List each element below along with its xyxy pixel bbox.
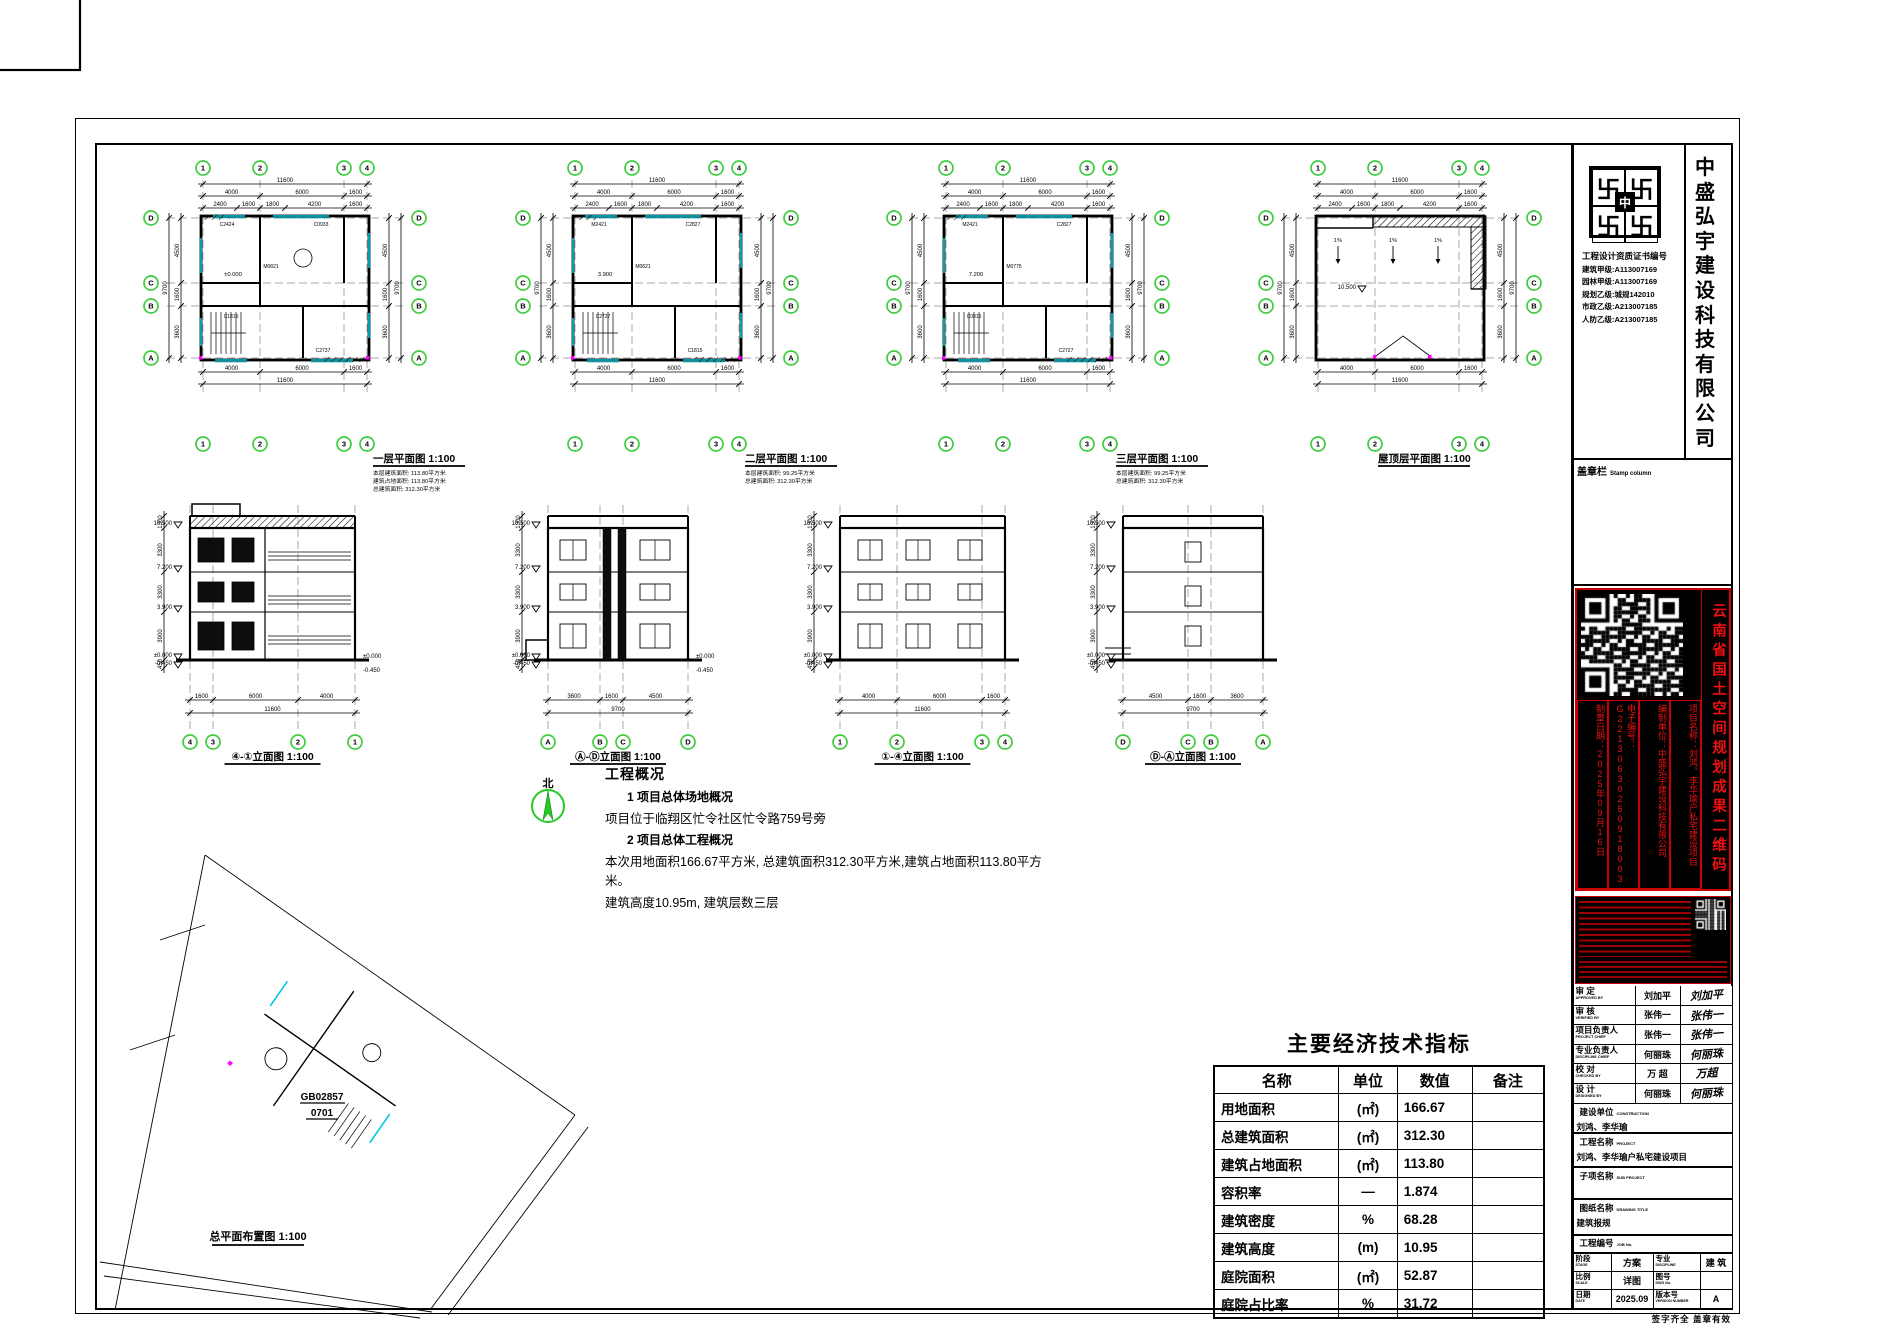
level-text: ±0.000 (512, 653, 531, 659)
level-text: 10.500 (1338, 285, 1357, 291)
dim-text: 1300 (158, 515, 164, 529)
level-text: ±0.000 (1087, 653, 1106, 659)
drawing-title-box: 图纸名称DRAWING TITLE 建筑报规 (1574, 1200, 1732, 1236)
stamp-side-text: 云南省国土空间规划成果二维码 (1701, 590, 1729, 889)
scale-value: 详图 (1614, 1273, 1651, 1288)
dim-text: 3900 (808, 629, 814, 643)
cad-rect (738, 356, 742, 360)
axis-label: D (520, 214, 526, 223)
level-mark (174, 522, 182, 528)
dim-text: 1600 (175, 287, 181, 301)
signature-handwriting: 刘加平 (1680, 984, 1732, 1006)
discipline-label: 专业 (1656, 1255, 1698, 1263)
tb-line-1 (1571, 458, 1733, 460)
dim-text: 1600 (349, 202, 363, 208)
indicator-cell: (㎡) (1338, 1094, 1396, 1121)
axis-label: 2 (1001, 440, 1005, 449)
axis-label: C (520, 279, 526, 288)
cad-rect (840, 528, 1005, 660)
cad-rect (199, 356, 203, 360)
indicator-cell (1472, 1094, 1543, 1121)
axis-label: B (416, 302, 422, 311)
dim-text: 6000 (1038, 366, 1052, 372)
indicator-row: 用地面积(㎡)166.67 (1215, 1093, 1543, 1121)
plan-level: 3.900 (598, 272, 613, 278)
cad-rect (943, 215, 967, 220)
dim-text: 3600 (175, 325, 181, 339)
indicator-cell: (㎡) (1338, 1262, 1396, 1289)
date-label: 日期 (1576, 1291, 1609, 1299)
slope-arrow (1336, 259, 1341, 264)
dim-text: 4200 (1051, 202, 1065, 208)
dim-text: 11600 (1392, 378, 1409, 384)
elevation-title: ①-④立面图 1:100 (881, 750, 964, 763)
plan-note: 本层建筑面积: 99.25平方米 (1116, 469, 1186, 477)
signature-role: 项目负责人 (1576, 1026, 1633, 1035)
cad-line (160, 925, 205, 940)
cad-rect (571, 356, 575, 360)
plot-code: GB02857 (301, 1092, 344, 1103)
axis-label: C (1531, 279, 1537, 288)
cad-rect (366, 356, 370, 360)
dim-text: 1600 (242, 202, 256, 208)
indicators-block: 主要经济技术指标 名称单位数值备注用地面积(㎡)166.67总建筑面积(㎡)31… (1213, 1028, 1545, 1319)
level-text: 3.900 (1090, 605, 1106, 611)
certificate-line: 规划乙级:城规142010 (1582, 289, 1682, 300)
dim-text: 6000 (295, 366, 309, 372)
dim-text: 9700 (906, 281, 912, 295)
cad-rect (190, 516, 355, 528)
axis-label: D (148, 214, 154, 223)
dim-text: 4000 (320, 694, 334, 700)
cad-rect (1123, 528, 1263, 660)
indicator-cell: % (1338, 1206, 1396, 1233)
signature-row: 校 对CHECKED BY万 超万超 (1574, 1064, 1732, 1084)
cad-line (100, 1262, 432, 1312)
cad-rect (1373, 216, 1486, 227)
cad-rect (232, 582, 254, 602)
dim-text: 4200 (1423, 202, 1437, 208)
dim-text: 1600 (987, 694, 1001, 700)
level-text: 7.200 (157, 565, 173, 571)
signature-name: 万 超 (1636, 1064, 1681, 1083)
dim-text: 9700 (163, 281, 169, 295)
axis-label: 2 (1001, 164, 1005, 173)
dim-text: 11600 (649, 378, 666, 384)
indicator-cell: 建筑占地面积 (1215, 1150, 1338, 1177)
signature-role-en: APPROVED BY (1576, 996, 1633, 1000)
dim-text: 3600 (918, 325, 924, 339)
dim-text: 1600 (755, 287, 761, 301)
certificate-line: 建筑甲级:A113007169 (1582, 264, 1682, 275)
indicator-cell (1472, 1122, 1543, 1149)
signature-name: 何丽珠 (1636, 1045, 1681, 1064)
dim-text: 3300 (808, 585, 814, 599)
indicator-cell: 31.72 (1397, 1290, 1472, 1317)
cad-rect (198, 622, 224, 650)
axis-label: C (620, 738, 626, 747)
dim-text: 4000 (968, 190, 982, 196)
dim-text: 3600 (383, 325, 389, 339)
dim-text: 4500 (1498, 243, 1504, 257)
indicators-title: 主要经济技术指标 (1213, 1028, 1545, 1058)
axis-label: A (891, 354, 897, 363)
indicator-cell: % (1338, 1290, 1396, 1317)
dim-text: 4200 (680, 202, 694, 208)
cad-rect (232, 538, 254, 562)
cad-line (104, 1276, 420, 1318)
project-name-box: 工程名称PROJECT 刘鸿、李华瑜户私宅建设项目 (1574, 1134, 1732, 1168)
dim-text: 4500 (649, 694, 663, 700)
indicator-cell (1472, 1150, 1543, 1177)
axis-label: 1 (944, 440, 948, 449)
axis-label: 3 (714, 440, 718, 449)
scale-row: 比例SCALE 详图 图号DWG No. (1574, 1272, 1732, 1290)
axis-label: 1 (944, 164, 948, 173)
level-mark (532, 522, 540, 528)
dim-text: 3300 (158, 585, 164, 599)
dim-text: 1600 (721, 202, 735, 208)
cad-rect (198, 538, 224, 562)
dim-text: 1600 (1092, 202, 1106, 208)
dim-text: 1600 (1464, 190, 1478, 196)
indicator-row: 建筑密度%68.28 (1215, 1205, 1543, 1233)
dim-text: 2400 (585, 202, 599, 208)
axis-label: A (416, 354, 422, 363)
dim-text: 1600 (1092, 366, 1106, 372)
dim-text: 4500 (547, 243, 553, 257)
opening-code: M0775 (1006, 264, 1022, 270)
slope-arrow (1391, 259, 1396, 264)
overview-heading-1: 1 项目总体场地概况 (605, 788, 1065, 805)
level-mark (1107, 606, 1115, 612)
dim-text: 6000 (1038, 190, 1052, 196)
dim-text: 1600 (721, 190, 735, 196)
dim-text: 1600 (614, 202, 628, 208)
axis-label: A (1159, 354, 1165, 363)
indicator-cell (1472, 1234, 1543, 1261)
level-mark (1107, 522, 1115, 528)
stamp-column-label: 盖章栏 (1577, 467, 1607, 478)
cad-rect (572, 215, 596, 220)
level-mark (1107, 566, 1115, 572)
plan-level: ±0.000 (224, 272, 242, 278)
opening-code: C2827 (686, 222, 701, 228)
cad-rect (1066, 357, 1112, 362)
plot-code: 0701 (311, 1108, 334, 1119)
job-label: 工程编号 (1580, 1238, 1614, 1248)
dim-text: 6000 (933, 694, 947, 700)
indicator-row: 庭院占比率%31.72 (1215, 1289, 1543, 1317)
axis-label: D (891, 214, 897, 223)
dim-text: 1300 (1091, 515, 1097, 529)
drawing-title-label-en: DRAWING TITLE (1617, 1207, 1649, 1212)
indicator-cell: 166.67 (1397, 1094, 1472, 1121)
cad-rect (200, 215, 224, 220)
company-name-vertical: 中盛弘宇建设科技有限公司 (1692, 156, 1718, 451)
cad-rect (1428, 355, 1432, 359)
dim-text: 1600 (985, 202, 999, 208)
slope-text: 1% (1389, 238, 1397, 244)
dim-text: 11600 (649, 178, 666, 184)
indicator-cell: 容积率 (1215, 1178, 1338, 1205)
validity-note: 签字齐全 盖章有效 (1585, 1313, 1731, 1325)
stamp-fine-print (1579, 901, 1691, 957)
stamp-column-box: 盖章栏Stamp column (1577, 462, 1651, 480)
indicator-row: 建筑占地面积(㎡)113.80 (1215, 1149, 1543, 1177)
axis-label: 2 (258, 164, 262, 173)
level-text: 3.900 (807, 605, 823, 611)
plan-note: 总建筑面积: 312.30平方米 (745, 477, 813, 485)
cad-rect (1185, 542, 1201, 562)
indicator-header-row: 名称单位数值备注 (1215, 1067, 1543, 1093)
dim-text: 3600 (567, 694, 581, 700)
signature-row: 项目负责人PROJECT CHIEF张伟一张伟一 (1574, 1025, 1732, 1045)
axis-label: 1 (1316, 164, 1320, 173)
stamp-electronic-no: 电子编号：G22130630250918003 (1608, 700, 1639, 889)
dim-text: 4000 (862, 694, 876, 700)
indicator-cell (1472, 1178, 1543, 1205)
version-label-en: VERSION NUMBER (1656, 1299, 1698, 1303)
plan-note: 总建筑面积: 312.30平方米 (373, 485, 441, 493)
axis-label: 1 (201, 440, 205, 449)
signature-role-en: DISCIPLINE CHIEF (1576, 1055, 1633, 1059)
axis-label: C (1159, 279, 1165, 288)
cad-line (448, 1127, 588, 1315)
indicator-cell: 113.80 (1397, 1150, 1472, 1177)
dim-text: 4000 (1340, 366, 1354, 372)
dim-text: 6000 (1410, 366, 1424, 372)
stamp-producer: 编制单位：中盛弘宇建设科技有限公司 (1639, 700, 1670, 889)
dim-text: 6000 (249, 694, 263, 700)
dim-text: 9700 (1186, 707, 1200, 713)
overview-title: 工程概况 (605, 764, 1065, 784)
axis-label: B (891, 302, 897, 311)
qr-code-small (1695, 899, 1726, 930)
level-mark (824, 662, 832, 668)
dim-text: 9700 (395, 281, 401, 295)
level-mark (532, 606, 540, 612)
plan-title: 一层平面图 1:100 (373, 453, 455, 465)
overview-line-height: 建筑高度10.95m, 建筑层数三层 (605, 892, 1065, 911)
cad-rect (198, 582, 224, 602)
axis-label: D (1263, 214, 1269, 223)
signature-row: 审 核VERIFIED BY张伟一张伟一 (1574, 1006, 1732, 1026)
dim-text: 3300 (158, 543, 164, 557)
dim-text: 3600 (1126, 325, 1132, 339)
date-label-en: DATE (1576, 1299, 1609, 1303)
drawing-title-label: 图纸名称 (1580, 1203, 1614, 1213)
cad-rect (1471, 227, 1486, 289)
dim-text: 1600 (721, 366, 735, 372)
dim-text: 1600 (349, 366, 363, 372)
dim-text: 450 (808, 658, 814, 669)
opening-code: C2727 (596, 314, 611, 320)
project-label-en: PROJECT (1617, 1141, 1636, 1146)
opening-code: C2727 (1059, 348, 1074, 354)
dim-text: 9700 (767, 281, 773, 295)
dim-text: 1800 (638, 202, 652, 208)
level-text: 7.200 (515, 565, 531, 571)
stamp-fine-print-footer (1579, 961, 1727, 980)
drawing-sheet: 11223344DDCCBBAA240016001800420016004000… (0, 0, 1879, 1328)
axis-label: 3 (1085, 440, 1089, 449)
cad-rect (1185, 586, 1201, 606)
signature-role-en: DESIGNED BY (1576, 1094, 1633, 1098)
level-text: 7.200 (1090, 565, 1106, 571)
dim-text: 4500 (175, 243, 181, 257)
signature-role-en: CHECKED BY (1576, 1074, 1633, 1078)
dim-text: 3600 (1498, 325, 1504, 339)
stage-label: 阶段 (1576, 1255, 1609, 1263)
opening-code: C2827 (1057, 222, 1072, 228)
indicator-cell: 312.30 (1397, 1122, 1472, 1149)
level-mark (532, 662, 540, 668)
slope-arrow (1436, 259, 1441, 264)
axis-label: A (788, 354, 794, 363)
slope-text: 1% (1334, 238, 1342, 244)
axis-label: A (1260, 738, 1266, 747)
opening-code: C0933 (314, 222, 329, 228)
dim-text: 4500 (383, 243, 389, 257)
construction-unit-box: 建设单位CONSTRUCTION 刘鸿、李华瑜 (1574, 1104, 1732, 1134)
axis-label: C (1263, 279, 1269, 288)
dim-text: 3300 (1091, 585, 1097, 599)
indicator-row: 庭院面积(㎡)52.87 (1215, 1261, 1543, 1289)
axis-label: 3 (1457, 164, 1461, 173)
indicator-cell: 庭院占比率 (1215, 1290, 1338, 1317)
dim-text: 4000 (1340, 190, 1354, 196)
cad-rect (603, 528, 611, 660)
axis-label: 1 (1316, 440, 1320, 449)
axis-label: B (1263, 302, 1269, 311)
indicator-cell: 建筑高度 (1215, 1234, 1338, 1261)
scale-label: 比例 (1576, 1273, 1609, 1281)
indicator-cell: 建筑密度 (1215, 1206, 1338, 1233)
level-mark (532, 566, 540, 572)
dim-text: 1300 (516, 515, 522, 529)
opening-code: M0821 (263, 264, 279, 270)
signature-role: 专业负责人 (1576, 1046, 1633, 1055)
cad-rect (942, 356, 946, 360)
indicator-cell (1472, 1290, 1543, 1317)
level-text: 3.900 (515, 605, 531, 611)
plan-note: 建筑占地面积: 113.80平方米 (373, 477, 446, 485)
signature-role-en: PROJECT CHIEF (1576, 1035, 1633, 1039)
dim-text: 6000 (295, 190, 309, 196)
indicator-cell: 52.87 (1397, 1262, 1472, 1289)
axis-label: 3 (980, 738, 984, 747)
dim-text: 3900 (158, 629, 164, 643)
cad-line (430, 1115, 575, 1310)
opening-code: C1815 (688, 348, 703, 354)
signature-role: 校 对 (1576, 1065, 1633, 1074)
axis-label: 2 (630, 164, 634, 173)
axis-label: 3 (714, 164, 718, 173)
axis-label: 2 (258, 440, 262, 449)
level-text: -0.450 (696, 668, 714, 674)
table-symbol (359, 1040, 384, 1065)
signature-name: 刘加平 (1636, 986, 1681, 1005)
indicator-header: 单位 (1338, 1067, 1396, 1093)
overview-heading-2: 2 项目总体工程概况 (605, 831, 1065, 848)
elevation-title: Ⓓ-Ⓐ立面图 1:100 (1150, 750, 1236, 763)
table-symbol (261, 1043, 292, 1074)
dwg-no-label: 图号 (1656, 1273, 1698, 1281)
subproject-box: 子项名称SUB PROJECT (1574, 1168, 1732, 1200)
dim-text: 1600 (918, 287, 924, 301)
dim-text: 1600 (1357, 202, 1371, 208)
logo-center-mark: 中 (1615, 192, 1635, 212)
dim-text: 4500 (918, 243, 924, 257)
dim-text: 9700 (1138, 281, 1144, 295)
north-label: 北 (543, 776, 554, 790)
level-mark (174, 662, 182, 668)
stamp-date: 制章日期：2025年09月16日 (1577, 700, 1608, 889)
job-no-box: 工程编号JOB No. (1574, 1236, 1732, 1254)
axis-label: D (788, 214, 794, 223)
dim-text: 9700 (1510, 281, 1516, 295)
overview-line-address: 项目位于临翔区忙令社区忙令路759号旁 (605, 808, 1065, 827)
date-row: 日期DATE 2025.09 版本号VERSION NUMBER A (1574, 1290, 1732, 1308)
dim-text: 1600 (1464, 366, 1478, 372)
cad-rect (1109, 356, 1113, 360)
level-mark (824, 522, 832, 528)
level-mark (174, 606, 182, 612)
axis-label: D (1120, 738, 1126, 747)
plan-level: 7.200 (969, 272, 984, 278)
axis-label: 1 (573, 164, 577, 173)
axis-label: B (1159, 302, 1165, 311)
project-overview: 工程概况 1 项目总体场地概况 项目位于临翔区忙令社区忙令路759号旁 2 项目… (605, 764, 1065, 911)
indicator-cell: (m) (1338, 1234, 1396, 1261)
stage-row: 阶段STAGE 方案 专业DISCIPLINE 建 筑 (1574, 1254, 1732, 1272)
dim-text: 3300 (516, 543, 522, 557)
signature-name: 张伟一 (1636, 1025, 1681, 1044)
axis-label: B (788, 302, 794, 311)
company-column-line (1684, 143, 1686, 458)
indicator-row: 容积率—1.874 (1215, 1177, 1543, 1205)
dim-text: 3900 (516, 629, 522, 643)
dim-text: 1800 (1009, 202, 1023, 208)
level-mark (824, 606, 832, 612)
cad-rect (618, 528, 626, 660)
construction-label-en: CONSTRUCTION (1617, 1111, 1649, 1116)
overview-line-areas: 本次用地面积166.67平方米, 总建筑面积312.30平方米,建筑占地面积11… (605, 851, 1065, 889)
indicators-table: 名称单位数值备注用地面积(㎡)166.67总建筑面积(㎡)312.30建筑占地面… (1213, 1065, 1545, 1319)
cad-rect (0, 0, 80, 70)
dim-text: 2400 (956, 202, 970, 208)
dim-text: 1600 (383, 287, 389, 301)
axis-label: C (891, 279, 897, 288)
level-mark (1358, 286, 1366, 292)
signature-handwriting: 张伟一 (1680, 1023, 1732, 1045)
plan-title: 三层平面图 1:100 (1116, 453, 1198, 465)
cad-line (115, 855, 205, 1310)
dim-text: 4500 (755, 243, 761, 257)
indicator-header: 名称 (1215, 1067, 1338, 1093)
dim-text: 1800 (266, 202, 280, 208)
dim-text: 9700 (1278, 281, 1284, 295)
axis-label: 1 (353, 738, 357, 747)
axis-label: A (520, 354, 526, 363)
axis-label: 2 (630, 440, 634, 449)
level-mark (1107, 662, 1115, 668)
dim-text: 4200 (308, 202, 322, 208)
signature-row: 专业负责人DISCIPLINE CHIEF何丽珠何丽珠 (1574, 1045, 1732, 1065)
dim-text: 6000 (667, 190, 681, 196)
indicator-cell: 庭院面积 (1215, 1262, 1338, 1289)
